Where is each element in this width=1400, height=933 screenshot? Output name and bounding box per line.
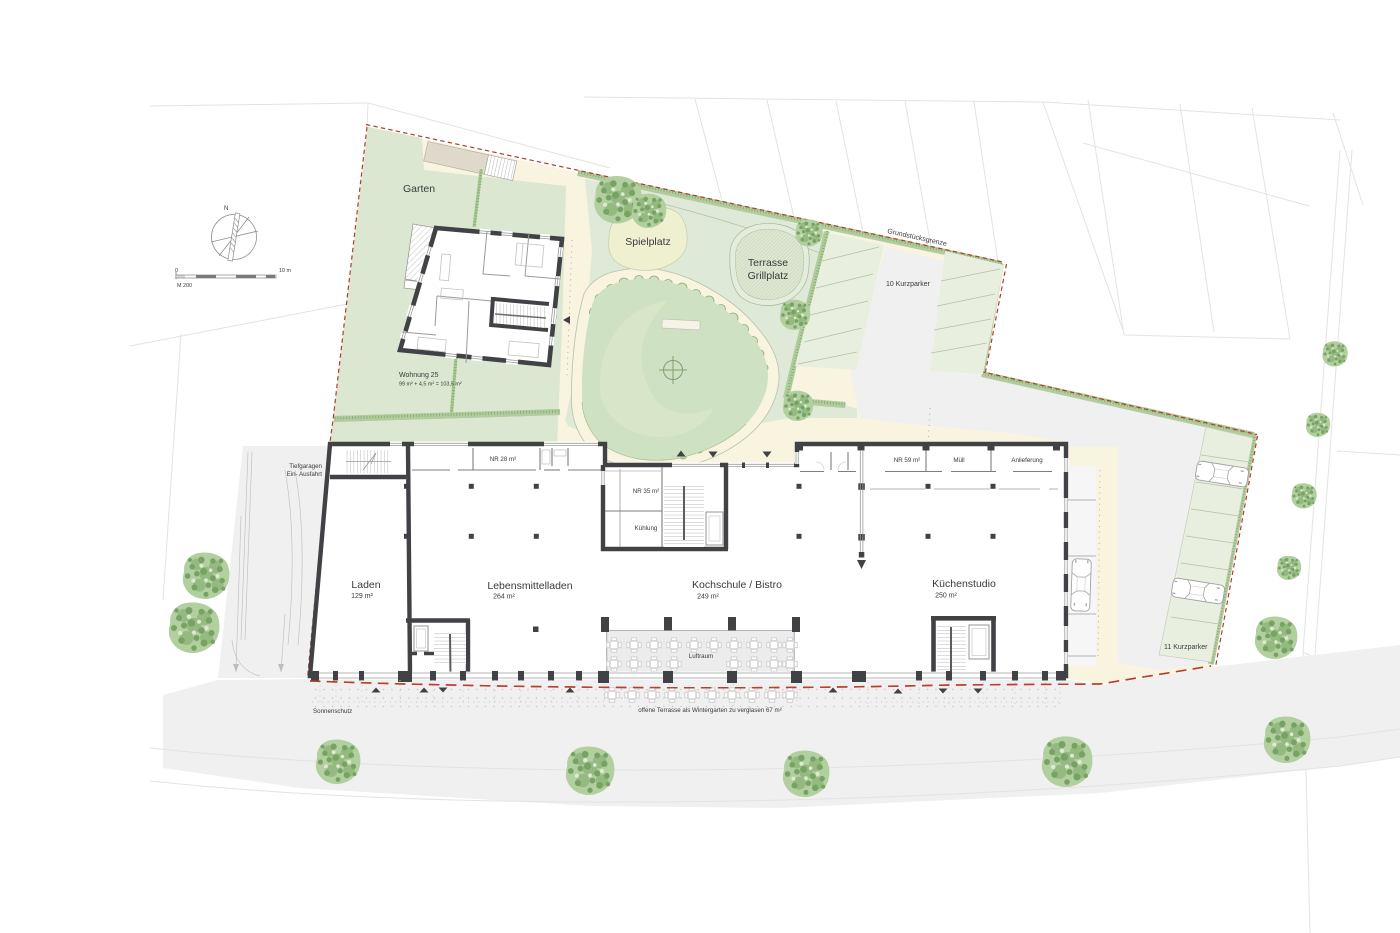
svg-text:11 Kurzparker: 11 Kurzparker <box>1164 644 1208 651</box>
svg-text:Anlieferung: Anlieferung <box>1011 457 1043 464</box>
svg-text:Grillplatz: Grillplatz <box>748 270 789 282</box>
svg-text:NR 59 m²: NR 59 m² <box>894 457 920 464</box>
svg-text:Wohnung 25: Wohnung 25 <box>399 372 439 379</box>
svg-text:Spielplatz: Spielplatz <box>625 236 671 248</box>
svg-text:250 m²: 250 m² <box>935 593 957 600</box>
svg-text:Laden: Laden <box>351 579 380 591</box>
svg-text:Müll: Müll <box>953 457 964 464</box>
svg-text:Küchenstudio: Küchenstudio <box>932 578 996 590</box>
svg-text:NR 28 m²: NR 28 m² <box>490 456 516 463</box>
svg-text:129 m²: 129 m² <box>351 593 373 600</box>
svg-text:10 m: 10 m <box>279 268 291 274</box>
svg-text:NR 35 m²: NR 35 m² <box>633 488 659 495</box>
svg-text:10 Kurzparker: 10 Kurzparker <box>886 281 931 288</box>
svg-text:Terrasse: Terrasse <box>748 257 788 269</box>
svg-text:Tiefgaragen: Tiefgaragen <box>289 463 322 470</box>
svg-text:Kochschule / Bistro: Kochschule / Bistro <box>692 579 782 591</box>
svg-text:Sonnenschutz: Sonnenschutz <box>313 708 352 715</box>
svg-text:Lebensmittelladen: Lebensmittelladen <box>487 580 572 592</box>
svg-text:M 200: M 200 <box>177 283 192 289</box>
svg-text:Ein- Ausfahrt: Ein- Ausfahrt <box>287 471 323 478</box>
svg-text:264 m²: 264 m² <box>493 594 515 601</box>
svg-text:Kühlung: Kühlung <box>635 525 658 532</box>
svg-text:249 m²: 249 m² <box>697 594 719 601</box>
svg-text:99 m² + 4,5 m² = 103,5 m²: 99 m² + 4,5 m² = 103,5 m² <box>399 382 462 388</box>
svg-text:N: N <box>224 205 228 212</box>
svg-text:offene Terrasse als Wintergart: offene Terrasse als Wintergarten zu verg… <box>638 707 782 714</box>
svg-text:Garten: Garten <box>403 183 435 195</box>
svg-text:0: 0 <box>175 268 178 274</box>
svg-text:Luftraum: Luftraum <box>689 653 713 660</box>
